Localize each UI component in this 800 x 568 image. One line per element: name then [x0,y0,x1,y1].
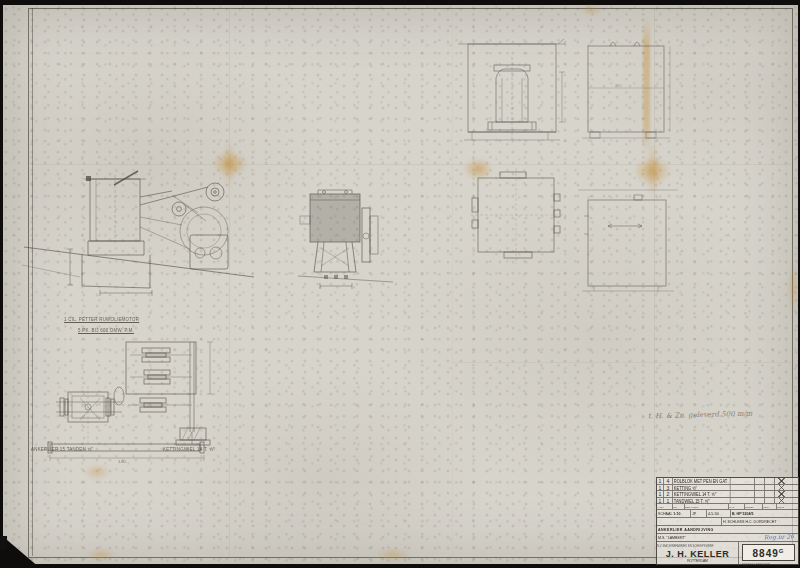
header-cell: BENAMING [685,504,729,509]
order-no-cell: B. HP 5204/5 [731,510,798,517]
housing-rear-view [578,182,678,297]
title-block: 1 4 ROLBLOK MET PEN EN GAT 1 3 KETTING ⅝… [656,477,799,565]
crease-line [452,8,454,556]
subject-cell: ANKERLIER AANDRIJVING [657,526,798,533]
part-blank [755,491,765,497]
side-dimension: 250 [615,83,622,88]
part-blank [765,491,775,497]
crosshatch-cell [775,478,788,484]
part-nr: 4 [664,478,673,484]
part-nr: 2 [664,491,673,497]
crosshatch-cell [775,485,788,491]
side-elevation-view [22,165,257,300]
date-value: 4-5-'60 [708,511,719,515]
part-blank [745,485,755,491]
date-cell: 4-5-'60 [707,510,731,517]
part-desc: KETTINGWIEL 14 T. ⅝″ [673,491,731,497]
housing-plan-view [468,166,568,266]
housing-front-view [458,32,568,147]
order-no: B. HP 5204/5 [732,511,754,515]
part-desc: TANDWIEL 15 T. ⅝″ [673,498,731,504]
crosshatch-cell [775,498,788,504]
drawing-number: 8849 [753,548,779,559]
client-name: H. SCHLESS H.C. DORDRECHT [723,519,777,523]
motor-caption-line1: 1 CIL. PETTER RUWOLIEMOTOR [64,316,139,322]
part-blank [755,478,765,484]
drawn-cell: JP [691,510,707,517]
part-blank [765,485,775,491]
stain [86,548,116,562]
part-nr: 3 [664,485,673,491]
stain [84,464,110,480]
stain [376,548,410,562]
company-number-row: N.V. MACHINEFABRIEK EN SCHEEPSWERF J. H.… [657,542,798,566]
company-name: J. H. KELLER [657,549,738,559]
part-qty: 1 [657,498,664,504]
drawing-number-suffix: G [779,548,785,554]
number-block: 8849G NADRUK VERBODEN [739,542,798,566]
stain [580,4,602,16]
client-row: H. SCHLESS H.C. DORDRECHT [657,518,798,526]
crosshatch-cell [775,491,788,497]
plan-caption-left: ANKERLIER 15 TANDEN ⅝″ [31,446,93,452]
part-blank [745,498,755,504]
header-cell: NR [673,504,685,509]
motor-caption-line2: 5 PK. BIJ 600 OMW. P.M. [78,327,134,333]
scale-cell: SCHAAL 1:10 [657,510,691,517]
client-cell: H. SCHLESS H.C. DORDRECHT [722,518,798,525]
crease-line [452,362,791,364]
blank-cell [657,518,722,525]
ship-name: M.S. "LAMBERT" [658,535,686,539]
drawing-number-box: 8849G [742,544,795,561]
scale-label: SCHAAL [658,511,672,515]
plan-caption-right: KETTINGWIEL 14 T. ⅝″ [163,446,215,452]
part-qty: 1 [657,491,664,497]
handwritten-reg-note: Reg.nr 26 [764,532,794,540]
scale-value: 1:10 [673,511,680,515]
part-desc: ROLBLOK MET PEN EN GAT [673,478,731,484]
part-blank [765,478,775,484]
company-fineprint: N.V. MACHINEFABRIEK EN SCHEEPSWERF [657,544,702,547]
drawn-value: JP [692,511,696,515]
part-blank [755,498,765,504]
header-cell: AANT [657,504,673,509]
part-blank [755,485,765,491]
scale-date-row: SCHAAL 1:10 JP 4-5-'60 B. HP 5204/5 [657,510,798,518]
stain [788,262,798,314]
part-blank [765,498,775,504]
header-cell: PRIJS [777,504,798,509]
company-city: ROTTERDAM [671,559,724,563]
plan-dimension: 1.60 [118,459,126,464]
header-cell: GEW. [763,504,777,509]
drawing-subject: ANKERLIER AANDRIJVING [658,527,714,531]
number-fineprint: NADRUK VERBODEN [742,564,771,567]
part-nr: 1 [664,498,673,504]
company-block: N.V. MACHINEFABRIEK EN SCHEEPSWERF J. H.… [657,542,739,566]
housing-side-view [580,32,675,147]
scan-edge-mark [0,536,7,549]
header-cell: MODEL [745,504,763,509]
part-qty: 1 [657,478,664,484]
part-desc: KETTING ⅝″ [673,485,731,491]
header-cell: MAT. [729,504,745,509]
ship-row: M.S. "LAMBERT" Reg.nr 26 [657,534,798,542]
part-blank [745,491,755,497]
part-qty: 1 [657,485,664,491]
scanned-technical-drawing: 1 CIL. PETTER RUWOLIEMOTOR 5 PK. BIJ 600… [0,0,800,568]
front-view [298,186,393,291]
part-blank [745,478,755,484]
